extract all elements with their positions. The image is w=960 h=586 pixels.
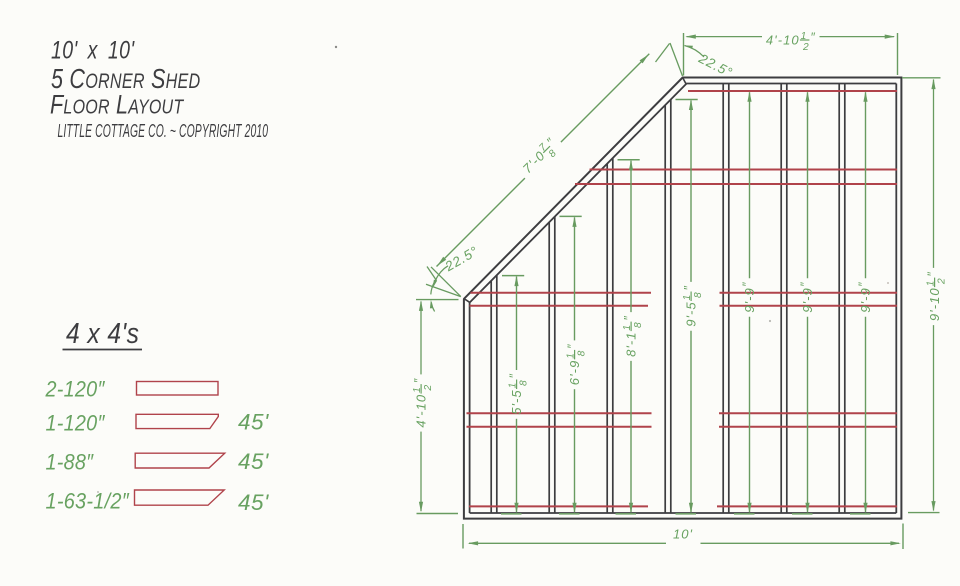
svg-text:1: 1 (926, 281, 937, 287)
svg-text:5'-5: 5'-5 (509, 389, 524, 414)
svg-text:8: 8 (633, 322, 644, 328)
svg-text:9'-9: 9'-9 (800, 287, 815, 312)
svg-text:″: ″ (856, 282, 870, 287)
svg-text:10' x 10': 10' x 10' (51, 36, 135, 64)
svg-text:″: ″ (507, 374, 521, 379)
svg-text:4'-10: 4'-10 (413, 394, 428, 428)
svg-text:1: 1 (508, 383, 519, 389)
svg-text:2-120″: 2-120″ (45, 377, 106, 401)
svg-text:″: ″ (622, 316, 636, 321)
svg-text:4 x 4's: 4 x 4's (66, 317, 139, 349)
svg-text:2: 2 (802, 42, 809, 53)
svg-text:9'-9: 9'-9 (858, 287, 873, 312)
svg-text:1-88″: 1-88″ (46, 450, 95, 474)
svg-text:″: ″ (565, 344, 579, 349)
svg-text:1: 1 (801, 31, 807, 42)
svg-text:4'-10: 4'-10 (766, 32, 800, 47)
svg-text:8: 8 (693, 292, 704, 298)
svg-text:1-120″: 1-120″ (46, 411, 106, 435)
svg-text:1: 1 (682, 295, 693, 301)
svg-text:LITTLE COTTAGE CO. ~ COPYRIGHT: LITTLE COTTAGE CO. ~ COPYRIGHT 2010 (58, 121, 269, 142)
svg-text:″: ″ (412, 378, 426, 383)
svg-text:″: ″ (682, 286, 696, 291)
svg-text:″: ″ (798, 282, 812, 287)
svg-text:2: 2 (423, 384, 434, 391)
svg-text:45': 45' (238, 410, 269, 435)
svg-text:″: ″ (810, 31, 815, 45)
svg-text:1: 1 (412, 387, 423, 393)
svg-text:6'-9: 6'-9 (567, 360, 582, 385)
svg-text:45': 45' (238, 490, 269, 515)
svg-text:9'-9: 9'-9 (742, 287, 757, 312)
svg-text:1: 1 (566, 353, 577, 359)
svg-text:10': 10' (673, 526, 693, 541)
svg-text:2: 2 (937, 278, 948, 285)
svg-text:8: 8 (519, 380, 530, 386)
svg-text:9'-5: 9'-5 (683, 301, 698, 326)
svg-text:9'-10: 9'-10 (927, 287, 942, 321)
svg-text:45': 45' (238, 449, 269, 474)
svg-text:″: ″ (925, 272, 939, 277)
svg-text:1-63-1/2″: 1-63-1/2″ (46, 488, 131, 513)
svg-text:″: ″ (740, 282, 754, 287)
svg-text:8'-1: 8'-1 (623, 331, 638, 356)
svg-text:8: 8 (577, 350, 588, 356)
svg-text:1: 1 (622, 325, 633, 331)
